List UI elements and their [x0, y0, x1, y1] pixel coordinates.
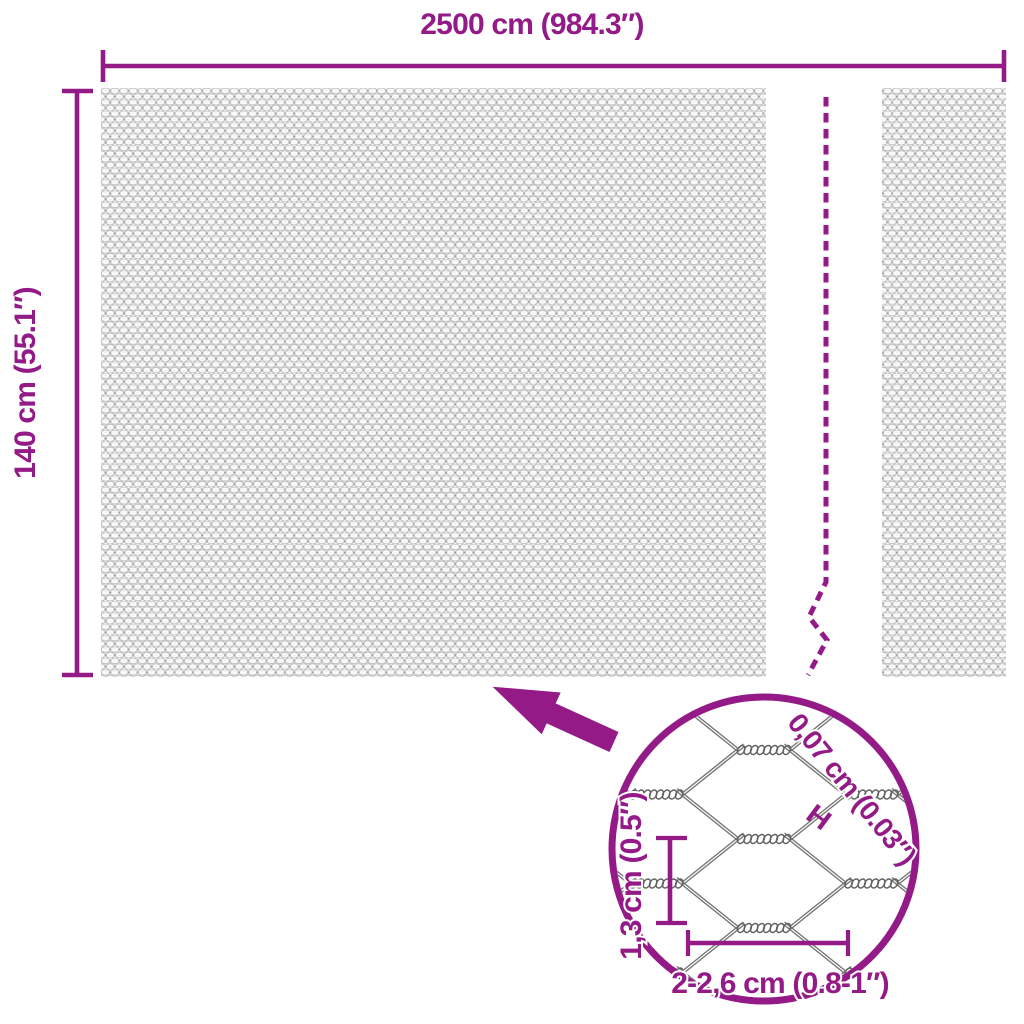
- svg-text:1,3 cm (0.5″): 1,3 cm (0.5″): [615, 792, 648, 959]
- svg-text:2500 cm (984.3″): 2500 cm (984.3″): [420, 8, 643, 41]
- svg-text:140 cm (55.1″): 140 cm (55.1″): [9, 287, 42, 479]
- svg-text:2-2,6 cm (0.8-1″): 2-2,6 cm (0.8-1″): [671, 967, 889, 1000]
